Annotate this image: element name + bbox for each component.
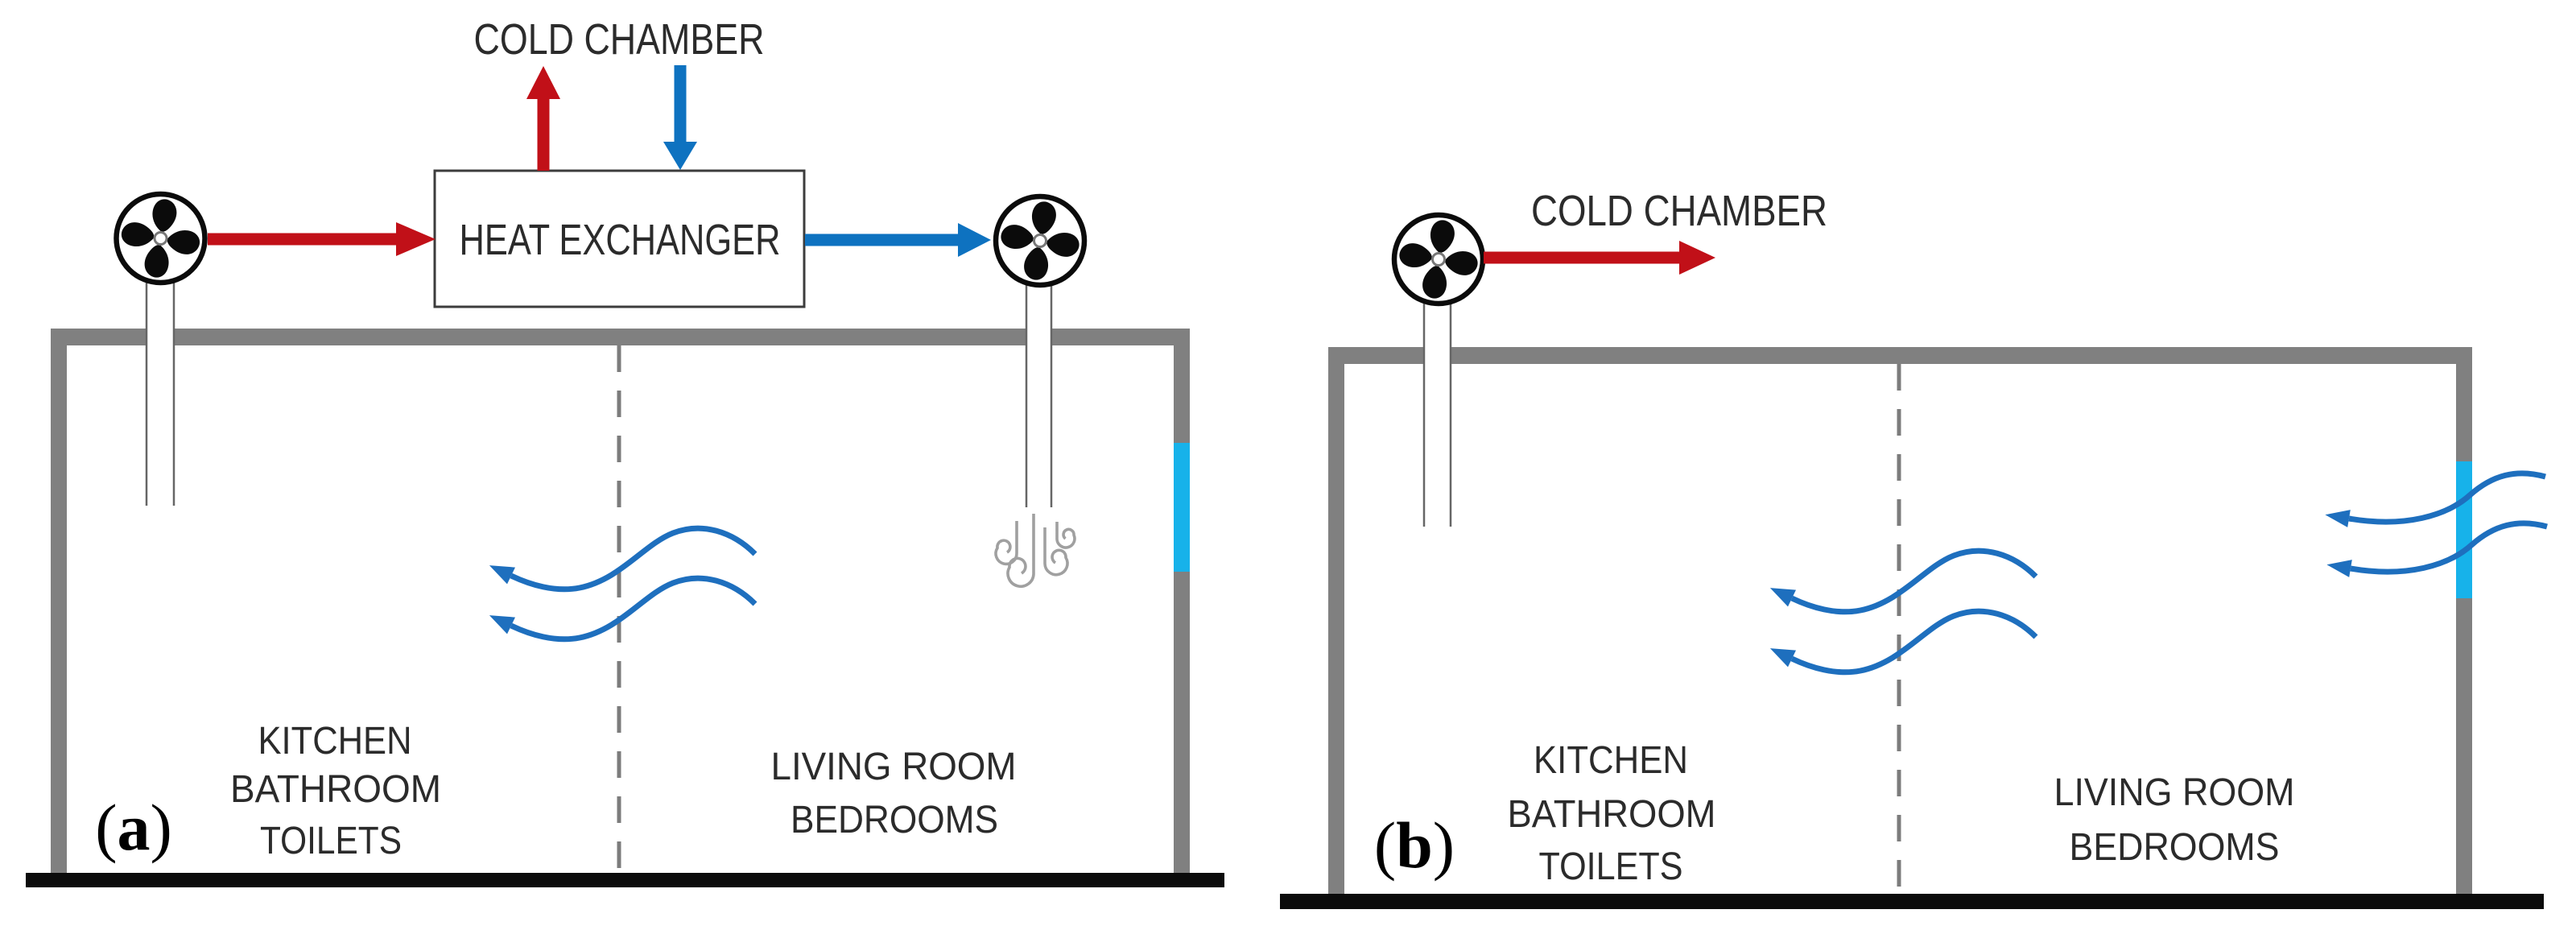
svg-text:COLD CHAMBER: COLD CHAMBER <box>474 15 765 64</box>
svg-text:BATHROOM: BATHROOM <box>1508 793 1716 836</box>
svg-text:BEDROOMS: BEDROOMS <box>2070 826 2280 869</box>
svg-text:(a): (a) <box>95 791 172 864</box>
svg-text:LIVING ROOM: LIVING ROOM <box>771 746 1017 788</box>
svg-text:BATHROOM: BATHROOM <box>230 768 441 811</box>
svg-text:KITCHEN: KITCHEN <box>258 720 412 763</box>
svg-text:(b): (b) <box>1374 808 1455 882</box>
svg-text:COLD CHAMBER: COLD CHAMBER <box>1531 187 1827 235</box>
svg-text:TOILETS: TOILETS <box>260 820 402 862</box>
svg-text:BEDROOMS: BEDROOMS <box>791 799 998 841</box>
svg-text:LIVING ROOM: LIVING ROOM <box>2054 771 2295 814</box>
svg-text:HEAT EXCHANGER: HEAT EXCHANGER <box>460 216 781 264</box>
svg-text:KITCHEN: KITCHEN <box>1534 739 1688 782</box>
svg-text:TOILETS: TOILETS <box>1539 845 1683 888</box>
